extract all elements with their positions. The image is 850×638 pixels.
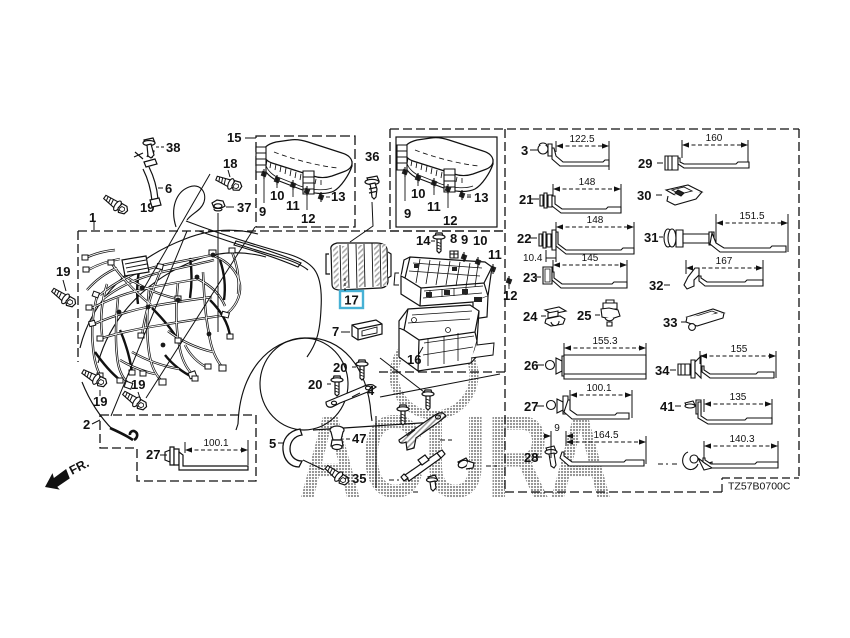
svg-text:22: 22 — [517, 231, 531, 246]
svg-text:12: 12 — [301, 211, 315, 226]
svg-text:11: 11 — [286, 198, 300, 213]
svg-text:14: 14 — [416, 233, 431, 248]
svg-text:23: 23 — [523, 270, 537, 285]
svg-text:9: 9 — [259, 204, 266, 219]
svg-text:140.3: 140.3 — [729, 434, 754, 445]
svg-text:11: 11 — [427, 199, 441, 214]
svg-text:30: 30 — [637, 188, 651, 203]
svg-text:148: 148 — [587, 215, 604, 226]
svg-text:148: 148 — [579, 177, 596, 188]
svg-text:167: 167 — [716, 256, 733, 267]
svg-text:47: 47 — [352, 431, 366, 446]
svg-text:32: 32 — [649, 278, 663, 293]
svg-text:1: 1 — [89, 210, 96, 225]
svg-text:5: 5 — [269, 436, 276, 451]
svg-text:13: 13 — [331, 189, 345, 204]
svg-text:17: 17 — [344, 293, 358, 308]
svg-text:100.1: 100.1 — [586, 383, 611, 394]
svg-text:29: 29 — [638, 156, 652, 171]
svg-text:145: 145 — [582, 253, 599, 264]
svg-text:10: 10 — [411, 186, 425, 201]
svg-text:135: 135 — [730, 392, 747, 403]
svg-text:19: 19 — [56, 264, 70, 279]
svg-text:15: 15 — [227, 130, 241, 145]
svg-text:2: 2 — [83, 417, 90, 432]
svg-text:100.1: 100.1 — [203, 438, 228, 449]
svg-text:6: 6 — [165, 181, 172, 196]
svg-text:16: 16 — [407, 352, 421, 367]
svg-text:155.3: 155.3 — [592, 336, 617, 347]
svg-text:7: 7 — [332, 324, 339, 339]
svg-text:9: 9 — [461, 232, 468, 247]
svg-text:36: 36 — [365, 149, 379, 164]
svg-text:10: 10 — [473, 233, 487, 248]
svg-text:18: 18 — [223, 156, 237, 171]
svg-text:31: 31 — [644, 230, 658, 245]
svg-text:35: 35 — [352, 471, 366, 486]
svg-text:41: 41 — [660, 399, 674, 414]
svg-text:25: 25 — [577, 308, 591, 323]
svg-text:9: 9 — [554, 423, 560, 434]
svg-text:164.5: 164.5 — [593, 430, 618, 441]
svg-text:33: 33 — [663, 315, 677, 330]
svg-text:37: 37 — [237, 200, 251, 215]
svg-text:151.5: 151.5 — [739, 211, 764, 222]
svg-text:155: 155 — [731, 344, 748, 355]
svg-text:13: 13 — [474, 190, 488, 205]
svg-text:19: 19 — [93, 394, 107, 409]
svg-text:8: 8 — [450, 231, 457, 246]
svg-text:27: 27 — [146, 447, 160, 462]
svg-text:10: 10 — [270, 188, 284, 203]
svg-text:20: 20 — [308, 377, 322, 392]
svg-text:38: 38 — [166, 140, 180, 155]
svg-text:19: 19 — [131, 377, 145, 392]
svg-text:10.4: 10.4 — [523, 253, 543, 264]
svg-text:TZ57B0700C: TZ57B0700C — [728, 481, 791, 493]
svg-text:3: 3 — [521, 143, 528, 158]
svg-text:9: 9 — [404, 206, 411, 221]
svg-text:24: 24 — [523, 309, 538, 324]
svg-text:12: 12 — [443, 213, 457, 228]
svg-text:20: 20 — [333, 360, 347, 375]
svg-text:4: 4 — [367, 383, 375, 398]
svg-text:34: 34 — [655, 363, 670, 378]
svg-text:122.5: 122.5 — [569, 134, 594, 145]
svg-text:11: 11 — [488, 247, 502, 262]
svg-text:160: 160 — [706, 133, 723, 144]
svg-text:12: 12 — [503, 288, 517, 303]
